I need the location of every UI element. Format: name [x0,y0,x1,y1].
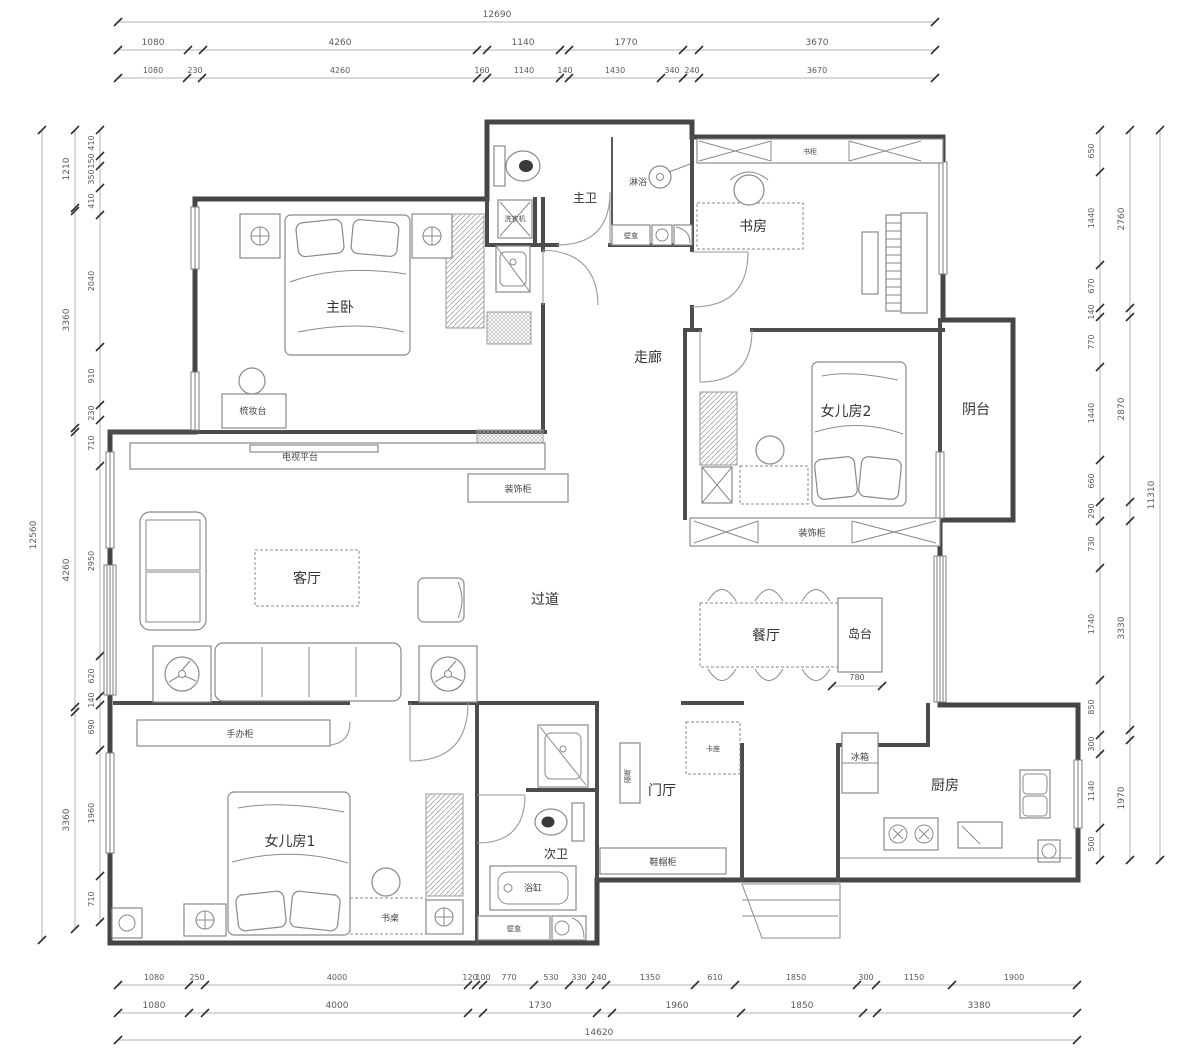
dim-label: 3670 [806,38,829,48]
dim-top-total: 12690 [483,10,512,20]
corner-unit [1038,840,1060,862]
dim-label: 610 [707,973,722,982]
shower-head [649,166,671,188]
kitchen-furniture [840,733,1072,862]
label-deco-cabinet: 装饰柜 [798,527,825,539]
floor-plan-page: 12690 1080 4260 1140 1770 3670 1080 230 … [0,0,1200,1053]
chair [418,578,464,622]
dim-label: 2950 [87,551,96,571]
dim-label: 1080 [143,1001,166,1011]
dim-label: 670 [1087,278,1096,293]
desk-chair [734,175,764,205]
counter [958,822,1002,848]
label-washing-machine: 洗衣机 [505,214,526,223]
dim-label: 4000 [327,973,347,982]
dim-label: 330 [571,973,586,982]
dim-label: 500 [1087,836,1096,851]
master-bedroom-furniture [222,214,452,428]
dim-label: 140 [557,66,572,75]
drain-box [652,225,672,245]
dim-right-total: 11310 [1147,480,1157,509]
piano-body [901,213,927,313]
label-partition: 隔断 [623,769,632,783]
dim-label: 410 [87,135,96,150]
dim-label: 4260 [62,558,72,581]
dim-label: 250 [189,973,204,982]
dim-label: 850 [1087,699,1096,714]
lamp-symbol [196,911,214,929]
label-corridor: 走廊 [634,349,662,366]
dim-label: 230 [187,66,202,75]
dim-label: 300 [1087,736,1096,751]
label-fridge: 冰箱 [851,751,869,763]
daughter1-wardrobe-hatch [426,794,463,896]
lamp-symbol [165,657,199,691]
dimension-chain-top: 12690 1080 4260 1140 1770 3670 1080 230 … [114,10,939,82]
dim-label: 1150 [904,973,924,982]
label-second-bath: 次卫 [544,847,568,861]
label-deco-cabinet: 装饰柜 [504,483,531,495]
dim-label: 1850 [791,1001,814,1011]
dim-label: 240 [684,66,699,75]
dim-label: 4000 [326,1001,349,1011]
dim-label: 1740 [1087,614,1096,634]
label-foyer: 门厅 [648,783,676,799]
dim-label: 340 [664,66,679,75]
second-bath-fixtures [478,725,588,940]
dim-label: 1440 [1087,208,1096,228]
lamp-symbol [435,908,453,926]
dim-label: 230 [87,405,96,420]
door-daughter2 [700,330,752,382]
dim-label: 1430 [605,66,625,75]
label-kitchen: 厨房 [931,778,959,794]
label-booth: 卡座 [706,744,720,753]
label-tv-platform: 电视平台 [282,451,318,463]
label-living-room: 客厅 [293,570,321,587]
sofa [215,643,401,701]
piano-bench [862,232,878,294]
dim-label: 910 [87,368,96,383]
dim-label: 140 [1087,304,1096,319]
lamp-symbol [423,227,441,245]
dim-label: 2760 [1117,207,1127,230]
dim-label: 620 [87,668,96,683]
label-desk: 书桌 [381,912,399,924]
foyer-furniture [600,722,840,938]
lamp-symbol [251,227,269,245]
drain-box [112,908,142,938]
armchair [140,512,206,630]
tv [250,445,378,452]
dim-label: 140 [87,692,96,707]
dim-label: 350 [87,169,96,184]
dim-label: 1440 [1087,403,1096,423]
dim-label: 4260 [329,38,352,48]
dim-label: 1850 [786,973,806,982]
chair [756,436,784,464]
lamp-symbol [431,657,465,691]
label-dining: 餐厅 [752,628,780,644]
dim-label: 3360 [62,808,72,831]
label-island: 岛台 [848,626,872,641]
label-dresser: 梳妆台 [239,405,266,417]
dim-label: 690 [87,719,96,734]
dimension-chain-bottom: 1080 250 4000 120 100 770 530 330 240 13… [114,973,1081,1044]
label-figure-cabinet: 手办柜 [226,728,253,740]
study-furniture [697,139,943,313]
glass-corner [674,225,692,245]
stove [884,818,938,850]
label-shoe-cabinet: 鞋帽柜 [649,856,676,868]
desk [740,466,808,504]
dim-left-total: 12560 [29,520,39,549]
dim-label: 160 [474,66,489,75]
label-passage: 过道 [531,592,559,608]
floor-plan-drawing: 12690 1080 4260 1140 1770 3670 1080 230 … [0,0,1200,1053]
dim-label: 1140 [514,66,534,75]
dim-label: 240 [591,973,606,982]
dim-label: 1080 [143,66,163,75]
chair [372,868,400,896]
dim-label: 3670 [807,66,827,75]
pillow [289,891,341,932]
dim-label: 410 [87,193,96,208]
living-room-furniture [130,443,568,702]
label-daughter-room2: 女儿房2 [821,403,872,420]
label-master-bedroom: 主卧 [326,300,354,316]
dim-label: 3380 [968,1001,991,1011]
dim-label: 1140 [512,38,535,48]
toilet-tank [494,146,505,186]
daughter2-wardrobe-hatch [700,392,737,465]
door-master [543,250,598,305]
dim-label: 1900 [1004,973,1024,982]
door-daughter1 [410,703,468,761]
toilet-bowl [519,160,533,172]
dim-label: 1210 [62,157,72,180]
dim-label: 710 [87,891,96,906]
dim-label: 1140 [1087,781,1096,801]
dim-label: 3330 [1117,616,1127,639]
dim-label: 770 [1087,334,1096,349]
dimension-chain-left: 12560 1210 3360 4260 3360 410 150 350 41… [29,126,104,944]
label-shower: 淋浴 [629,176,647,188]
dim-label: 780 [849,673,864,682]
label-study: 书房 [739,219,767,235]
dim-label: 1970 [1117,786,1127,809]
dimension-island-width: 780 [828,673,886,690]
dim-label: 770 [501,973,516,982]
dim-label: 660 [1087,473,1096,488]
dim-bottom-total: 14620 [585,1028,614,1038]
label-balcony: 阴台 [962,402,990,418]
dim-label: 1080 [144,973,164,982]
dim-label: 3360 [62,308,72,331]
toilet-bowl [542,817,555,828]
dim-label: 1350 [640,973,660,982]
door-second-bath [477,795,525,843]
windows [104,162,1082,853]
dim-label: 710 [87,435,96,450]
label-niche: 壁龛 [507,924,521,933]
dim-label: 4260 [330,66,350,75]
corridor-rug-hatch [487,312,531,344]
pillow [814,456,858,500]
pillow [858,456,902,500]
pillow [351,219,400,257]
dim-label: 100 [475,973,490,982]
label-bookcase: 书柜 [803,147,817,156]
dim-label: 730 [1087,536,1096,551]
label-bathtub: 浴缸 [524,882,542,894]
dim-label: 1770 [615,38,638,48]
dim-label: 2040 [87,271,96,291]
dim-label: 2870 [1117,397,1127,420]
pillow [235,891,287,932]
dim-label: 650 [1087,143,1096,158]
dresser-stool [239,368,265,394]
toilet-tank [572,803,584,841]
pillow [295,219,344,258]
label-niche: 壁龛 [624,231,638,240]
dim-label: 1960 [87,803,96,823]
door-study [692,252,748,307]
dim-label: 290 [1087,503,1096,518]
dim-label: 1080 [142,38,165,48]
label-master-bath: 主卫 [573,191,597,205]
dim-label: 1730 [529,1001,552,1011]
label-daughter-room1: 女儿房1 [265,833,316,850]
dim-label: 300 [858,973,873,982]
entry-steps [742,884,840,938]
dim-label: 1960 [666,1001,689,1011]
dim-label: 150 [87,153,96,168]
dim-label: 530 [543,973,558,982]
dimension-chain-right: 650 1440 670 140 770 1440 660 290 730 17… [1087,126,1164,864]
